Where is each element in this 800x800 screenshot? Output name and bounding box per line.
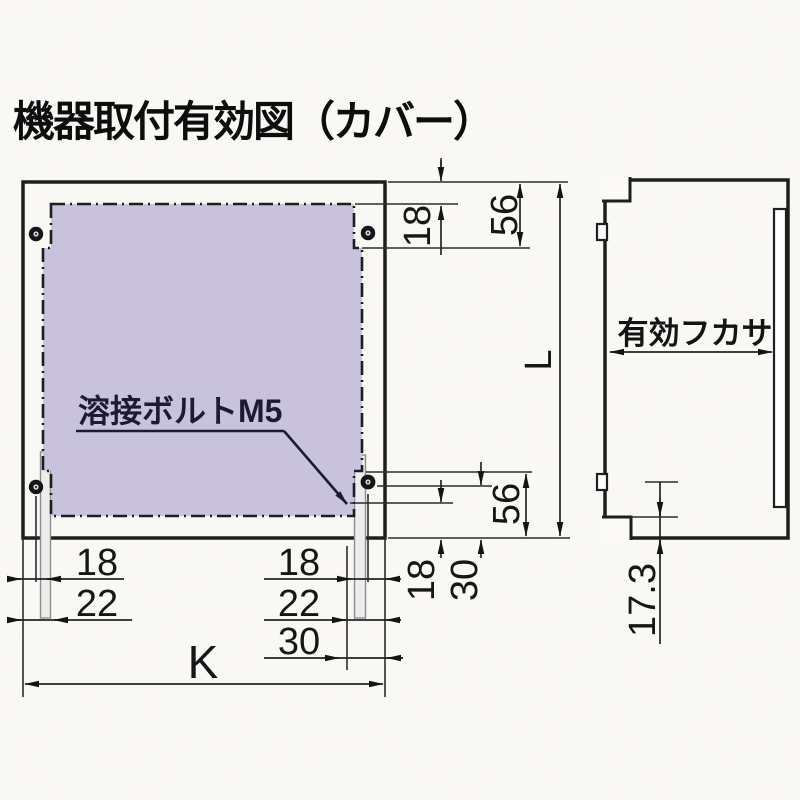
weld-bolt-m5	[361, 475, 376, 490]
side-bolt-tab-bottom	[597, 474, 607, 490]
dim-label-bottom-right-mid: 22	[278, 583, 320, 625]
left-bolt-stud	[41, 452, 51, 618]
side-bolt-tab-top	[597, 224, 607, 240]
side-notch-top-left	[601, 176, 630, 201]
dim-label-bottom-inset: 17.3	[622, 563, 664, 637]
side-notch-bottom-left	[601, 516, 631, 542]
dim-label-height: L	[518, 349, 560, 370]
dim-label-width: K	[188, 636, 219, 688]
dim-label-right-margin: 56	[486, 483, 528, 525]
dim-label-bottom-left-inner: 18	[76, 542, 118, 584]
dim-label-right-bolt-edge: 30	[444, 559, 486, 601]
dim-label-bottom-left-outer: 22	[76, 583, 118, 625]
effective-depth-label: 有効フカサ	[618, 316, 773, 351]
mounting-screw-top-left	[29, 227, 43, 241]
weld-bolt-label: 溶接ボルトM5	[78, 393, 282, 429]
dim-effective-depth: 有効フカサ	[610, 316, 773, 352]
dim-label-top-offset: 18	[397, 205, 439, 247]
cover-panel	[43, 204, 362, 516]
dim-label-bottom-right-outer: 30	[278, 621, 320, 663]
mounting-screw-bottom-left	[29, 480, 43, 494]
technical-drawing: 機器取付有効図（カバー）	[0, 0, 800, 800]
mounting-screw-top-right	[361, 226, 375, 240]
dim-label-right-bolt-offset: 18	[401, 559, 443, 601]
dim-label-bottom-right-inner: 18	[278, 542, 320, 584]
side-groove	[774, 209, 786, 507]
dim-label-top-margin: 56	[484, 194, 526, 236]
drawing-title: 機器取付有効図（カバー）	[13, 98, 493, 145]
